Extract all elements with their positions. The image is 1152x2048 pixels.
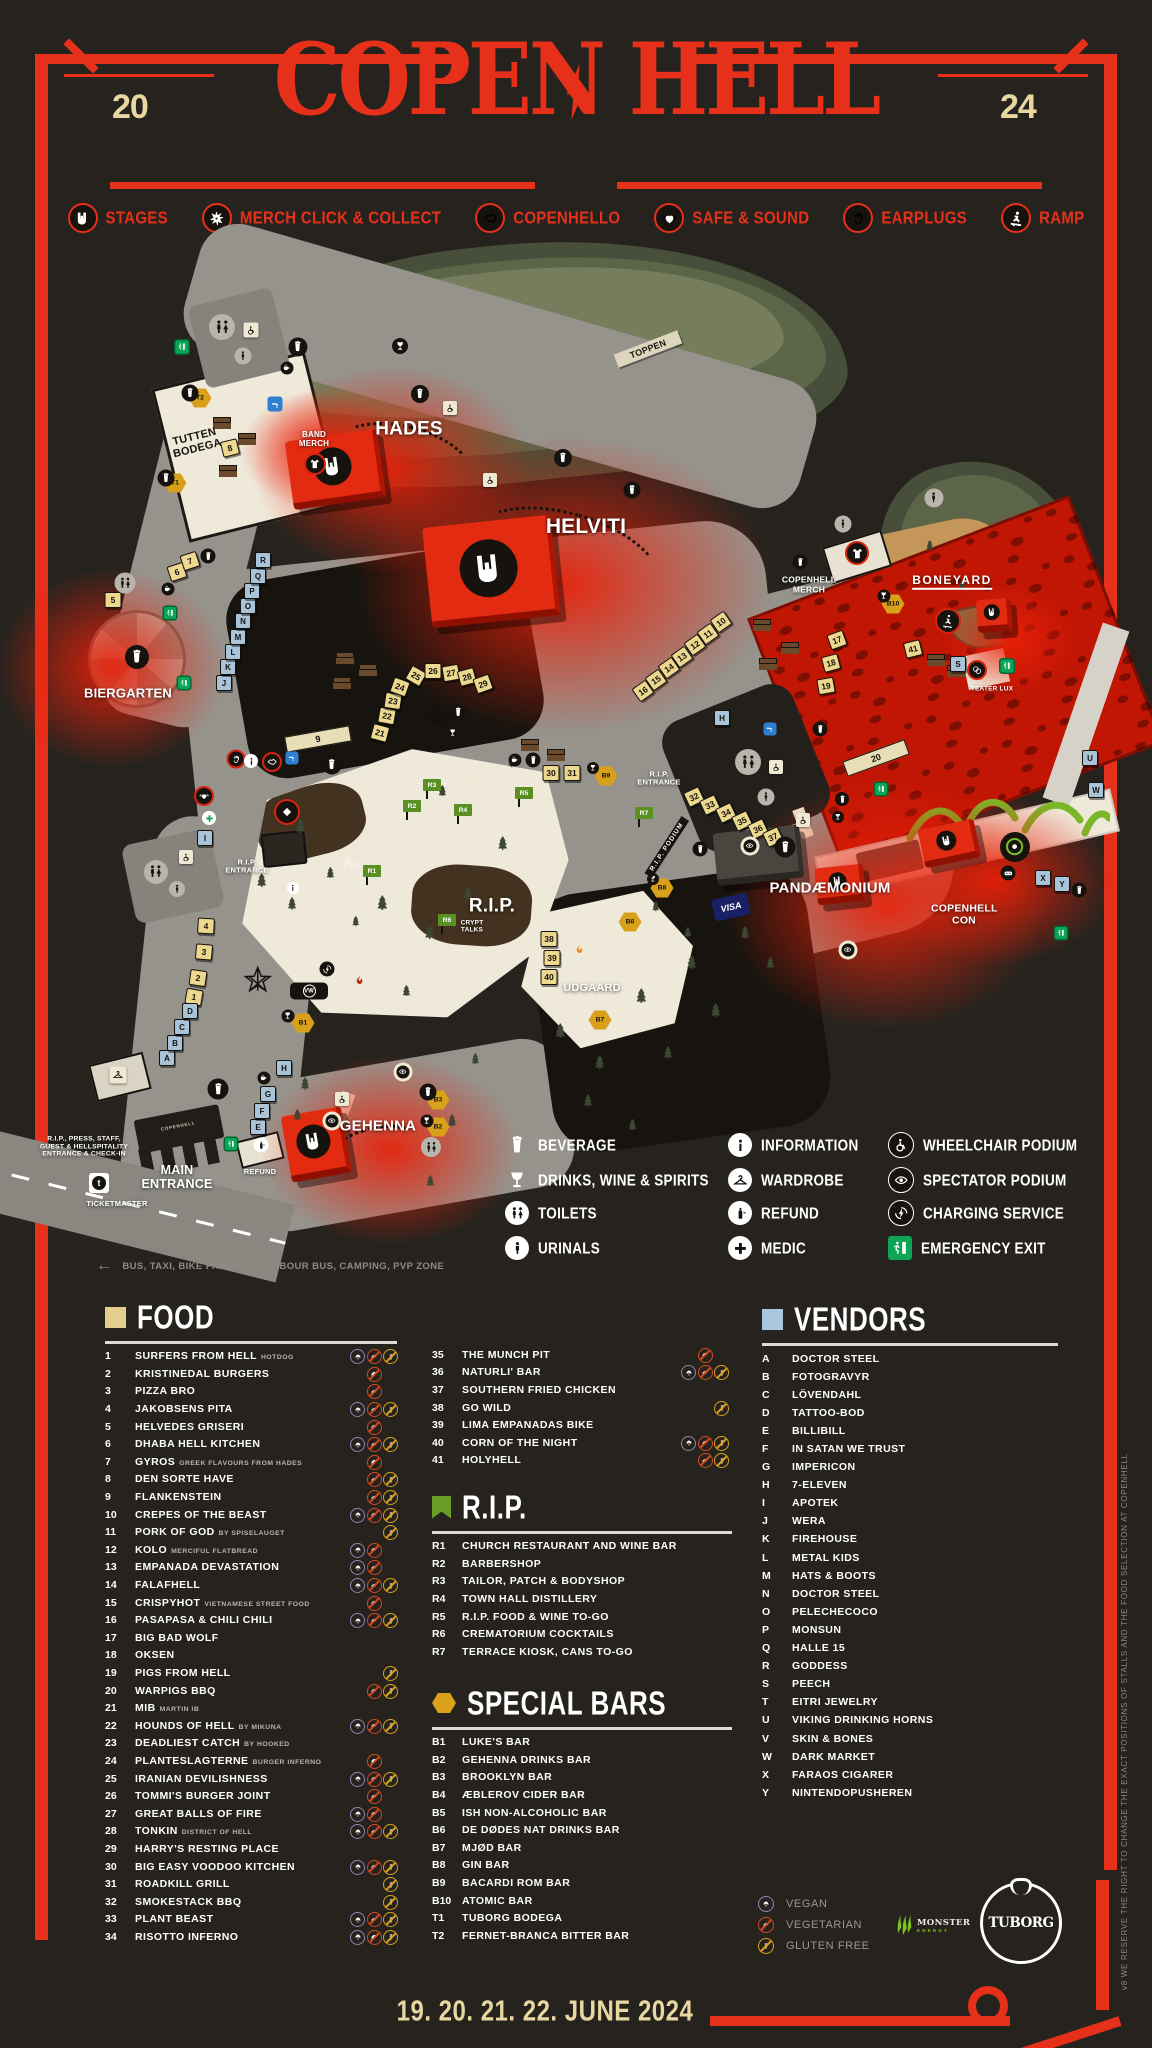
stage-copenhell-con-stage — [918, 819, 982, 869]
diet-vg-icon — [367, 1807, 382, 1822]
diet-slot — [383, 1543, 397, 1557]
item-name: SOUTHERN FRIED CHICKEN — [462, 1384, 678, 1396]
item-number: R7 — [432, 1646, 462, 1658]
diet-icons — [347, 1437, 397, 1451]
beer-icon — [693, 842, 708, 857]
tree-icon — [287, 1104, 307, 1124]
item-name: THE MUNCH PIT — [462, 1349, 678, 1361]
diet-icons — [347, 1930, 397, 1944]
list-item: R4TOWN HALL DISTILLERY — [432, 1590, 732, 1608]
stage-helviti — [422, 515, 561, 629]
map-legend-urinals: URINALS — [505, 1236, 600, 1260]
diet-gf-icon — [383, 1613, 398, 1628]
exit-icon — [164, 607, 176, 619]
diet-slot — [367, 1578, 381, 1592]
map-stall-number: 15 — [644, 669, 667, 692]
map-label: TICKETMASTER — [86, 1200, 147, 1208]
diet-slot — [698, 1383, 712, 1397]
map-stall-number: 40 — [541, 969, 558, 985]
item-name: ISH NON-ALCOHOLIC BAR — [462, 1807, 732, 1819]
item-name: PELECHECOCO — [792, 1606, 1058, 1618]
bus-note: ← BUS, TAXI, BIKE PARKING, HARBOUR BUS, … — [96, 1258, 444, 1274]
list-item: T1TUBORG BODEGA — [432, 1909, 732, 1927]
stage-glow — [355, 435, 775, 735]
beer-icon — [158, 470, 175, 487]
podium-strip-pand — [792, 807, 814, 839]
list-item: B9BACARDI ROM BAR — [432, 1874, 732, 1892]
diet-icons — [347, 1666, 397, 1680]
list-item: B10ATOMIC BAR — [432, 1892, 732, 1910]
beer-icon — [1072, 883, 1087, 898]
map-legend-label: REFUND — [761, 1204, 819, 1221]
stage-pandaemonium-back — [712, 825, 804, 887]
bench — [753, 619, 771, 625]
list-item: 21MIBMARTIN IB — [105, 1699, 397, 1717]
diet-icons — [347, 1367, 397, 1381]
list-item: 13EMPANADA DEVASTATION — [105, 1559, 397, 1577]
diet-slot — [698, 1401, 712, 1415]
building-rip-entrance-booth — [260, 830, 307, 868]
diet-slot — [698, 1436, 712, 1450]
diet-slot — [383, 1455, 397, 1469]
tree-icon — [347, 912, 365, 930]
list-item: WDARK MARKET — [762, 1748, 1058, 1766]
legend-item-earplugs: EARPLUGS — [843, 203, 967, 233]
item-number: O — [762, 1606, 792, 1618]
item-number: 36 — [432, 1366, 462, 1378]
map-legend-label: SPECTATOR PODIUM — [923, 1171, 1067, 1188]
eye-icon — [326, 1115, 339, 1128]
diet-slot — [383, 1701, 397, 1715]
beer-icon — [835, 792, 849, 806]
diet-slot — [383, 1824, 397, 1838]
tree-icon — [418, 920, 442, 944]
shake-icon — [262, 752, 282, 772]
list-item: IAPOTEK — [762, 1494, 1058, 1512]
diet-vg-icon — [367, 1349, 382, 1364]
diet-gf-icon — [383, 1525, 398, 1540]
diet-icons — [347, 1807, 397, 1821]
map-legend-label: CHARGING SERVICE — [923, 1204, 1064, 1221]
map-vendor-letter: I — [197, 830, 213, 846]
item-name: BIG EASY VOODOO KITCHEN — [135, 1861, 347, 1873]
exit-icon — [225, 1138, 237, 1150]
diet-slot — [350, 1701, 364, 1715]
hanger-icon — [728, 1168, 752, 1192]
map-stall-number: 24 — [389, 677, 410, 698]
map-stall-number: 25 — [405, 665, 428, 687]
tree-icon — [588, 1050, 612, 1074]
monster-energy-logo: MONSTER ENERGY — [896, 1908, 974, 1942]
diet-gf-icon — [383, 1719, 398, 1734]
item-number: 11 — [105, 1526, 135, 1538]
item-name: HOUNDS OF HELLBY MIKUNA — [135, 1720, 347, 1732]
map-label: BIERGARTEN — [84, 687, 172, 702]
map-stall-number: 18 — [821, 653, 842, 673]
bench — [213, 417, 231, 423]
eye-icon — [397, 1066, 410, 1079]
diet-gf-icon — [383, 1666, 398, 1681]
map-stall-number: 12 — [683, 634, 706, 657]
map-label: GEHENNA — [340, 1119, 416, 1136]
item-name: NATURLI' BAR — [462, 1366, 678, 1378]
item-name: DOCTOR STEEL — [792, 1353, 1058, 1365]
diet-gf-icon — [714, 1401, 729, 1416]
item-name: GIN BAR — [462, 1859, 732, 1871]
item-name: BILLIBILL — [792, 1425, 1058, 1437]
map-label: REFUND — [244, 1168, 276, 1176]
list-item: B2GEHENNA DRINKS BAR — [432, 1751, 732, 1769]
legend-label: MERCH CLICK & COLLECT — [240, 208, 441, 228]
item-name: LÖVENDAHL — [792, 1389, 1058, 1401]
item-name: TAILOR, PATCH & BODYSHOP — [462, 1575, 732, 1587]
list-item: 28TONKINDISTRICT OF HELL — [105, 1823, 397, 1841]
item-name: GODDESS — [792, 1660, 1058, 1672]
stage-gehenna — [281, 1106, 353, 1183]
diet-slot — [383, 1860, 397, 1874]
beer-icon — [526, 753, 541, 768]
item-name: DEADLIEST CATCHBY HOOKED — [135, 1737, 347, 1749]
map-legend-toilets: TOILETS — [505, 1201, 597, 1225]
toilets-icon — [421, 1137, 441, 1157]
cc-icon — [274, 799, 300, 825]
map-stall-number: 2 — [188, 969, 207, 987]
map-label: CRYPT TALKS — [455, 920, 489, 935]
diet-icons — [347, 1772, 397, 1786]
list-item: 32SMOKESTACK BBQ — [105, 1893, 397, 1911]
map-legend-label: TOILETS — [538, 1204, 597, 1221]
map-label: R.I.P., PRESS, STAFF, GUEST & HELLSPITAL… — [37, 1136, 131, 1159]
list-item: LMETAL KIDS — [762, 1549, 1058, 1567]
item-subtitle: HOTDOG — [261, 1354, 294, 1361]
diet-icons — [347, 1525, 397, 1539]
map-stall-number: 38 — [541, 931, 558, 947]
exit-icon — [176, 341, 189, 354]
item-number: 12 — [105, 1544, 135, 1556]
diet-slot — [383, 1807, 397, 1821]
diet-slot — [383, 1789, 397, 1803]
item-name: ATOMIC BAR — [462, 1895, 732, 1907]
tree-icon — [457, 882, 479, 904]
diet-slot — [350, 1596, 364, 1610]
tree-icon — [622, 1114, 642, 1134]
diet-slot — [367, 1648, 381, 1662]
festival-logo: COPENHELL — [274, 30, 879, 129]
item-subtitle: MERCIFUL FLATBREAD — [171, 1548, 258, 1555]
list-item: 14FALAFHELL — [105, 1576, 397, 1594]
diet-ve-icon — [350, 1560, 365, 1575]
item-name: DHABA HELL KITCHEN — [135, 1438, 347, 1450]
item-number: A — [762, 1353, 792, 1365]
diet-slot — [367, 1543, 381, 1557]
diet-slot — [367, 1596, 381, 1610]
map-vendor-letter: F — [254, 1103, 270, 1119]
map-stall-number: 19 — [816, 677, 836, 696]
list-item: B4ÆBLEROV CIDER BAR — [432, 1786, 732, 1804]
diet-slot — [681, 1418, 695, 1432]
diet-gf-icon — [383, 1472, 398, 1487]
tree-icon — [647, 897, 665, 915]
tap-icon — [268, 397, 283, 412]
diet-slot — [383, 1631, 397, 1645]
item-name: IRANIAN DEVILISHNESS — [135, 1773, 347, 1785]
special-bars-header: SPECIAL BARS — [432, 1686, 732, 1720]
beer-icon — [420, 1084, 437, 1101]
list-item: 16PASAPASA & CHILI CHILI — [105, 1611, 397, 1629]
item-number: 7 — [105, 1456, 135, 1468]
diet-vg-icon — [367, 1719, 382, 1734]
map-stall-number: 31 — [564, 765, 581, 781]
map-stall-number: 27 — [441, 664, 461, 683]
building-main-gate-prongs — [138, 1135, 222, 1178]
tent-icon — [460, 763, 490, 793]
map-vendor-letter: N — [235, 613, 251, 629]
beer-icon — [624, 482, 641, 499]
wc-icon — [796, 813, 810, 827]
item-number: 31 — [105, 1878, 135, 1890]
diet-vg-icon — [367, 1912, 382, 1927]
map-vendor-letter: H — [714, 710, 730, 726]
bench — [238, 433, 256, 439]
diet-slot — [350, 1912, 364, 1926]
map-legend-drinks-wine-spirits: DRINKS, WINE & SPIRITS — [505, 1168, 709, 1192]
map-vendor-letter: E — [250, 1119, 266, 1135]
item-number: 5 — [105, 1421, 135, 1433]
frame-ornament-br-diag — [1004, 2016, 1121, 2048]
bench — [359, 664, 377, 670]
item-number: 33 — [105, 1913, 135, 1925]
diet-icons — [347, 1736, 397, 1750]
diet-icons — [678, 1383, 728, 1397]
item-name: TOMMI'S BURGER JOINT — [135, 1790, 347, 1802]
item-name: FIREHOUSE — [792, 1533, 1058, 1545]
list-item: TEITRI JEWELRY — [762, 1693, 1058, 1711]
building-ticketmaster-booth — [82, 1166, 120, 1204]
terrain-rip-zone — [231, 739, 579, 1031]
item-name: GREAT BALLS OF FIRE — [135, 1808, 347, 1820]
diet-icons — [347, 1912, 397, 1926]
food-header: FOOD — [105, 1300, 397, 1334]
diet-ve-icon — [681, 1436, 696, 1451]
diet-icons — [347, 1824, 397, 1838]
list-item: 27GREAT BALLS OF FIRE — [105, 1805, 397, 1823]
item-name: CREPES OF THE BEAST — [135, 1509, 347, 1521]
map-label: MAIN ENTRANCE — [133, 1163, 221, 1191]
item-subtitle: VIETNAMESE STREET FOOD — [204, 1601, 309, 1608]
map-rip-flag: R5 — [515, 787, 533, 799]
item-number: H — [762, 1479, 792, 1491]
terrain-boneyard-sand — [835, 509, 1035, 701]
map-stall-number: 3 — [195, 943, 213, 960]
diet-slot — [367, 1367, 381, 1381]
map-vendor-letter: K — [220, 659, 236, 675]
food-bullet — [105, 1307, 126, 1328]
tap-icon — [764, 723, 777, 736]
header: COPENHELL — [0, 38, 1152, 122]
item-name: TOWN HALL DISTILLERY — [462, 1593, 732, 1605]
tree-icon — [432, 780, 452, 800]
list-item: 26TOMMI'S BURGER JOINT — [105, 1787, 397, 1805]
item-number: B2 — [432, 1754, 462, 1766]
coffee-icon — [281, 362, 294, 375]
building-copenhell-merch — [822, 530, 892, 584]
diet-slot — [367, 1508, 381, 1522]
beer-icon — [505, 1133, 529, 1157]
item-name: GO WILD — [462, 1402, 678, 1414]
list-item: JWERA — [762, 1512, 1058, 1530]
con-tentacles — [905, 788, 1110, 846]
beer-icon — [450, 704, 466, 720]
list-item: 5HELVEDES GRISERI — [105, 1418, 397, 1436]
map-label: HADES — [375, 418, 443, 439]
diet-vg-icon — [367, 1578, 382, 1593]
item-name: CORN OF THE NIGHT — [462, 1437, 678, 1449]
map-legend-label: MEDIC — [761, 1239, 806, 1256]
stage-glow — [260, 1055, 520, 1245]
diet-ve-icon — [350, 1719, 365, 1734]
list-item: 17BIG BAD WOLF — [105, 1629, 397, 1647]
tuborg-logo: TUBORG — [980, 1882, 1062, 1964]
map-stall-number: 21 — [370, 723, 391, 743]
urinal-icon — [925, 489, 944, 508]
item-name: SMOKESTACK BBQ — [135, 1896, 347, 1908]
list-item: R2BARBERSHOP — [432, 1555, 732, 1573]
diet-slot — [350, 1842, 364, 1856]
tree-icon — [628, 982, 654, 1008]
diet-ve-icon — [350, 1912, 365, 1927]
drinks-icon — [392, 338, 408, 354]
item-number: 26 — [105, 1790, 135, 1802]
diet-vg-icon — [367, 1560, 382, 1575]
diet-vg-icon — [367, 1596, 382, 1611]
map-stall-number: 22 — [377, 707, 397, 726]
item-number: T — [762, 1696, 792, 1708]
beer-icon — [208, 1079, 229, 1100]
year-right: 24 — [1000, 88, 1036, 127]
diet-slot — [383, 1490, 397, 1504]
list-item: SPEECH — [762, 1675, 1058, 1693]
tree-icon — [420, 1170, 440, 1190]
diet-slot — [350, 1560, 364, 1574]
vendors-header: VENDORS — [762, 1302, 1058, 1336]
masks-icon — [967, 660, 987, 680]
redfire-icon — [351, 972, 369, 990]
item-name: TATTOO-BOD — [792, 1407, 1058, 1419]
terrain-teater-lux-pad — [962, 648, 1010, 690]
diet-slot — [350, 1719, 364, 1733]
tree-icon — [287, 812, 313, 838]
list-item: 31ROADKILL GRILL — [105, 1875, 397, 1893]
item-number: 1 — [105, 1350, 135, 1362]
rip-bullet — [432, 1496, 451, 1519]
beer-icon — [775, 837, 796, 858]
map-legend-spectator-podium: SPECTATOR PODIUM — [888, 1167, 1067, 1193]
diet-gf-icon — [383, 1490, 398, 1505]
item-name: DOCTOR STEEL — [792, 1588, 1058, 1600]
special-bars-title: SPECIAL BARS — [467, 1683, 666, 1723]
building-con-hall — [814, 788, 1120, 899]
map-label: BONEYARD — [912, 574, 992, 590]
coffee-icon — [509, 754, 522, 767]
diet-slot — [383, 1930, 397, 1944]
item-number: B9 — [432, 1877, 462, 1889]
item-name: VIKING DRINKING HORNS — [792, 1714, 1058, 1726]
diet-slot — [367, 1525, 381, 1539]
item-number: B7 — [432, 1842, 462, 1854]
list-item: ADOCTOR STEEL — [762, 1350, 1058, 1368]
tree-icon — [657, 1041, 679, 1063]
item-number: B3 — [432, 1771, 462, 1783]
item-number: 13 — [105, 1561, 135, 1573]
diet-slot — [350, 1508, 364, 1522]
map-stall-number: 32 — [683, 786, 705, 808]
bench — [947, 665, 965, 671]
diet-icons — [347, 1789, 397, 1803]
map-label: COPENHELL CON — [931, 903, 997, 927]
list-item: 40CORN OF THE NIGHT — [432, 1434, 728, 1452]
diet-ve-icon — [350, 1508, 365, 1523]
building-band-merch — [295, 448, 339, 486]
diet-slot — [367, 1824, 381, 1838]
diet-slot — [350, 1684, 364, 1698]
item-number: 9 — [105, 1491, 135, 1503]
list-item: 15CRISPYHOTVIETNAMESE STREET FOOD — [105, 1594, 397, 1612]
list-item: 4JAKOBSENS PITA — [105, 1400, 397, 1418]
item-number: 2 — [105, 1368, 135, 1380]
tree-icon — [465, 1048, 485, 1068]
list-item: R1CHURCH RESTAURANT AND WINE BAR — [432, 1538, 732, 1556]
diet-vg-icon — [698, 1365, 713, 1380]
item-number: X — [762, 1769, 792, 1781]
map-label: COPENHELL MERCH — [777, 575, 841, 594]
item-number: I — [762, 1497, 792, 1509]
item-name: LUKE'S BAR — [462, 1736, 732, 1748]
diet-slot — [383, 1367, 397, 1381]
coffee-icon — [162, 583, 175, 596]
bench — [521, 739, 539, 745]
item-number: R3 — [432, 1575, 462, 1587]
item-number: 22 — [105, 1720, 135, 1732]
map-stall-number: 36 — [747, 818, 769, 840]
diet-slot — [350, 1895, 364, 1909]
diet-slot — [350, 1490, 364, 1504]
map-stall-number: 29 — [472, 674, 493, 695]
item-name: MJØD BAR — [462, 1842, 732, 1854]
item-number: B5 — [432, 1807, 462, 1819]
item-number: 3 — [105, 1385, 135, 1397]
terrain-udgaard-zone — [513, 886, 703, 1053]
tree-icon — [503, 753, 521, 771]
diet-slot — [367, 1877, 381, 1891]
map-legend-wardrobe: WARDROBE — [728, 1168, 844, 1192]
diet-slot — [350, 1437, 364, 1451]
item-name: FERNET-BRANCA BITTER BAR — [462, 1930, 732, 1942]
tree-icon — [734, 921, 756, 943]
list-item: 12KOLOMERCIFUL FLATBREAD — [105, 1541, 397, 1559]
diet-slot — [681, 1436, 695, 1450]
tree-icon — [396, 980, 416, 1000]
vw-click-collect-car: VW — [290, 983, 328, 1000]
diet-slot — [350, 1789, 364, 1803]
diet-slot — [350, 1772, 364, 1786]
terrain-lava-canal — [747, 495, 1152, 866]
diet-slot — [383, 1684, 397, 1698]
diet-slot — [367, 1719, 381, 1733]
diet-ve-icon — [350, 1824, 365, 1839]
list-item: GIMPERICON — [762, 1458, 1058, 1476]
bench — [547, 749, 565, 755]
item-number: B8 — [432, 1859, 462, 1871]
